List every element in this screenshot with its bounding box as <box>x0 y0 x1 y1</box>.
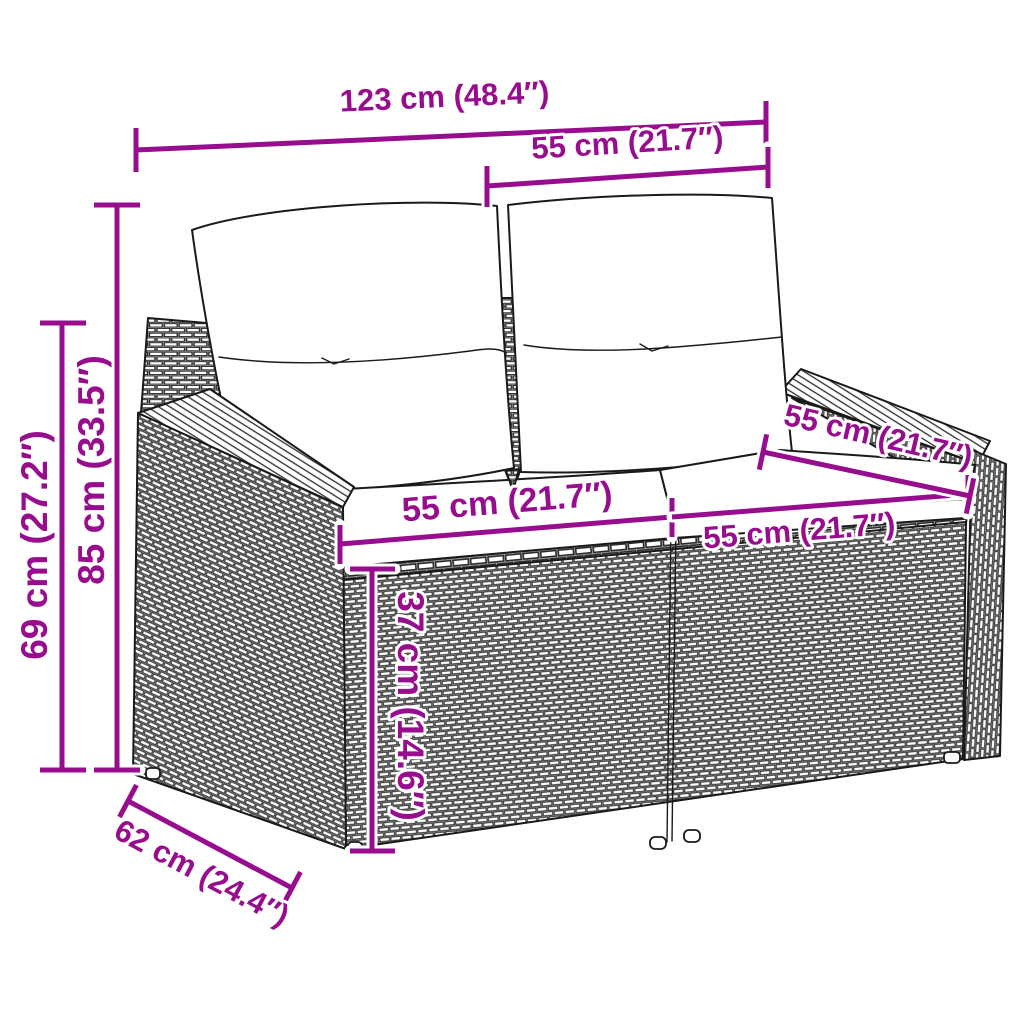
sofa-diagram-canvas: 123 cm (48.4″) 55 cm (21.7″) 85 cm (33.5… <box>0 0 1024 1024</box>
dim-overall-width-label: 123 cm (48.4″) <box>339 74 550 118</box>
dim-seat-height-label: 37 cm (14.6″) <box>390 591 431 821</box>
dim-armrest-height-label: 69 cm (27.2″) <box>14 430 55 660</box>
back-cushion-right <box>508 195 792 473</box>
seat-base-front <box>343 522 966 849</box>
dim-overall-height-label: 85 cm (33.5″) <box>71 355 112 585</box>
product-dimension-diagram: 123 cm (48.4″) 55 cm (21.7″) 85 cm (33.5… <box>0 0 1024 1024</box>
dim-overall-height: 85 cm (33.5″) <box>71 205 140 770</box>
